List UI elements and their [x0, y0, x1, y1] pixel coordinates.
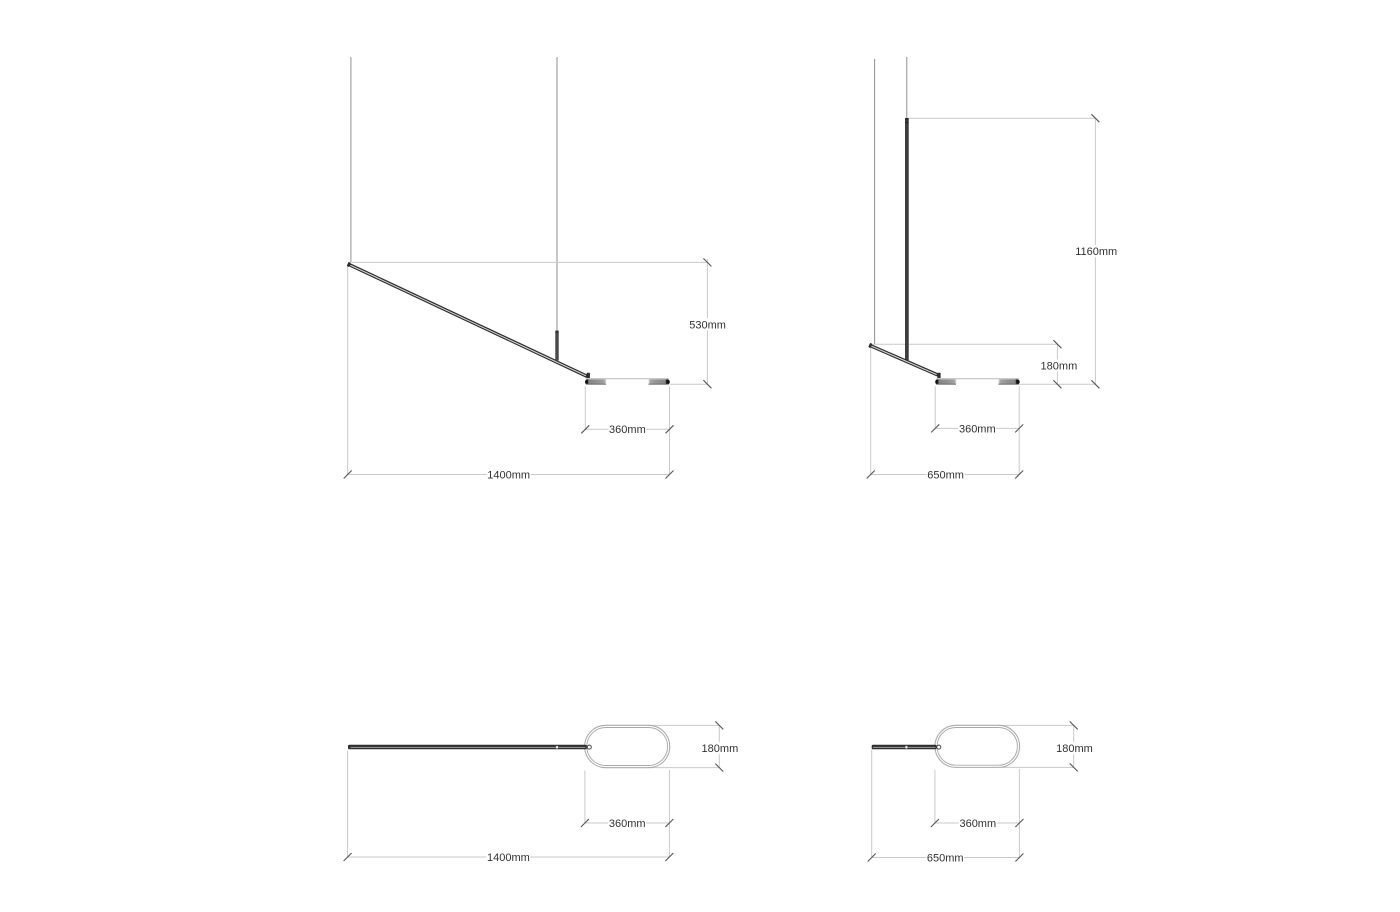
svg-text:360mm: 360mm: [959, 818, 996, 830]
svg-text:180mm: 180mm: [1056, 743, 1093, 755]
svg-text:650mm: 650mm: [927, 852, 964, 864]
svg-text:1160mm: 1160mm: [1075, 246, 1117, 258]
svg-text:360mm: 360mm: [959, 423, 996, 435]
svg-text:360mm: 360mm: [609, 818, 646, 830]
svg-text:180mm: 180mm: [702, 743, 739, 755]
svg-text:360mm: 360mm: [609, 424, 646, 436]
svg-text:1400mm: 1400mm: [487, 852, 530, 864]
svg-text:650mm: 650mm: [927, 469, 964, 481]
svg-text:180mm: 180mm: [1041, 361, 1078, 373]
svg-text:1400mm: 1400mm: [487, 469, 530, 481]
svg-text:530mm: 530mm: [689, 319, 726, 331]
